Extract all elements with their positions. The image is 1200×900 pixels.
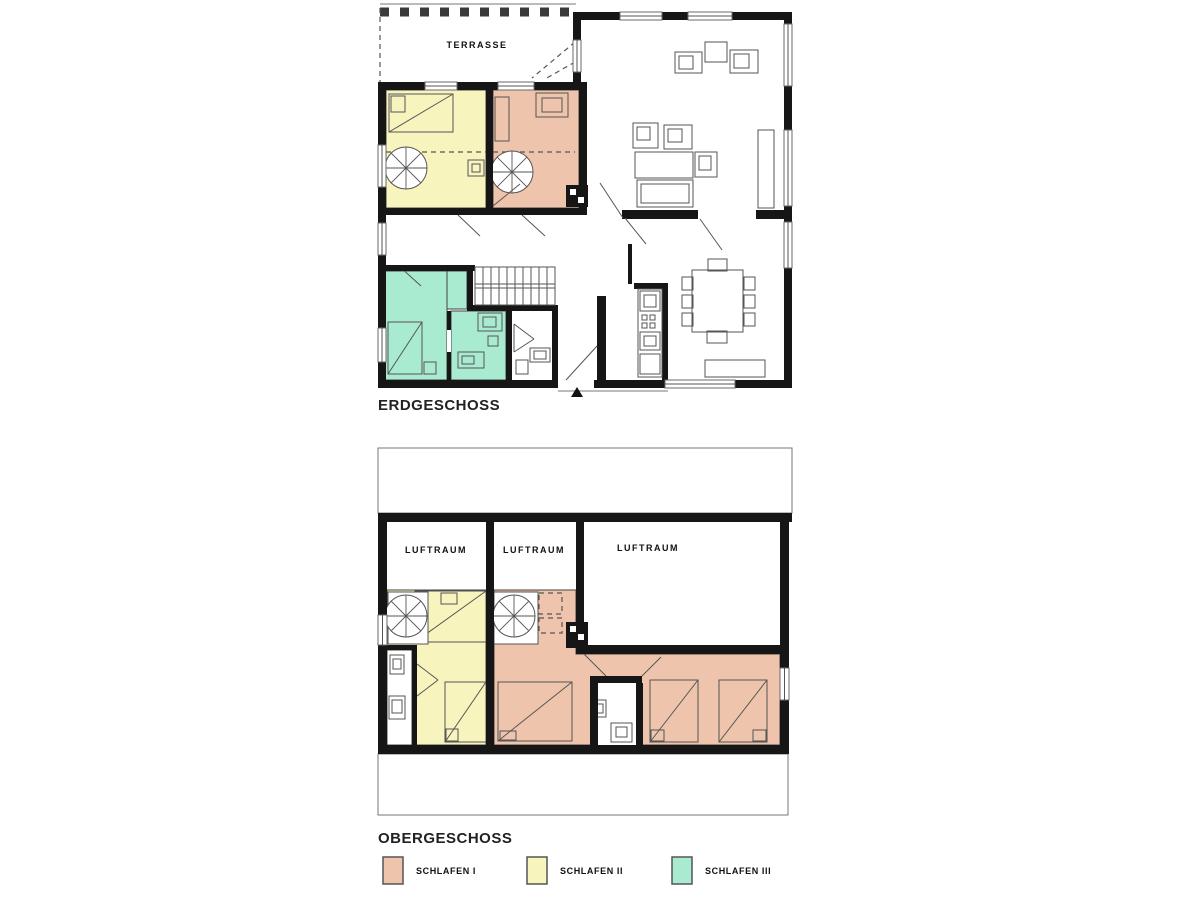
legend-label-schlafen2: SCHLAFEN II <box>560 866 623 876</box>
legend: SCHLAFEN I SCHLAFEN II SCHLAFEN III <box>383 857 771 884</box>
og-title: OBERGESCHOSS <box>378 830 512 847</box>
og-spiral-stair-left <box>385 595 427 637</box>
eg-spiral-stair-left <box>385 147 427 189</box>
eg-spiral-stair-right <box>491 151 533 193</box>
eg-living-room <box>633 42 774 208</box>
legend-item-schlafen3: SCHLAFEN III <box>672 857 771 884</box>
legend-label-schlafen1: SCHLAFEN I <box>416 866 476 876</box>
eg-staircase <box>475 267 555 305</box>
terrace-label: TERRASSE <box>446 40 507 50</box>
luftraum-label-left: LUFTRAUM <box>405 545 467 555</box>
eg-title: ERDGESCHOSS <box>378 397 500 414</box>
og-spiral-stair-right <box>493 595 535 637</box>
terrace: TERRASSE <box>380 4 576 82</box>
entrance-arrow <box>571 387 583 397</box>
og-roof-band-bottom <box>378 754 788 815</box>
eg-room-schlafen1 <box>491 90 579 208</box>
eg-chimney <box>566 185 588 207</box>
eg-bathroom <box>514 324 550 374</box>
eg-dining <box>682 259 765 377</box>
legend-item-schlafen1: SCHLAFEN I <box>383 857 476 884</box>
luftraum-label-right: LUFTRAUM <box>617 543 679 553</box>
legend-swatch-schlafen3 <box>672 857 692 884</box>
legend-swatch-schlafen2 <box>527 857 547 884</box>
obergeschoss-plan: LUFTRAUM LUFTRAUM LUFTRAUM OBERGESCHOSS <box>378 448 792 847</box>
legend-swatch-schlafen1 <box>383 857 403 884</box>
og-chimney <box>566 622 588 648</box>
eg-kitchen <box>638 289 662 377</box>
og-roof-band-top <box>378 448 792 513</box>
legend-label-schlafen3: SCHLAFEN III <box>705 866 771 876</box>
eg-room-schlafen2 <box>385 90 486 208</box>
legend-item-schlafen2: SCHLAFEN II <box>527 857 623 884</box>
eg-teal-room <box>384 271 447 380</box>
erdgeschoss-plan: TERRASSE <box>378 4 792 414</box>
floorplan-drawing: TERRASSE <box>0 0 1200 900</box>
floorplan-page: TERRASSE <box>0 0 1200 900</box>
luftraum-label-middle: LUFTRAUM <box>503 545 565 555</box>
